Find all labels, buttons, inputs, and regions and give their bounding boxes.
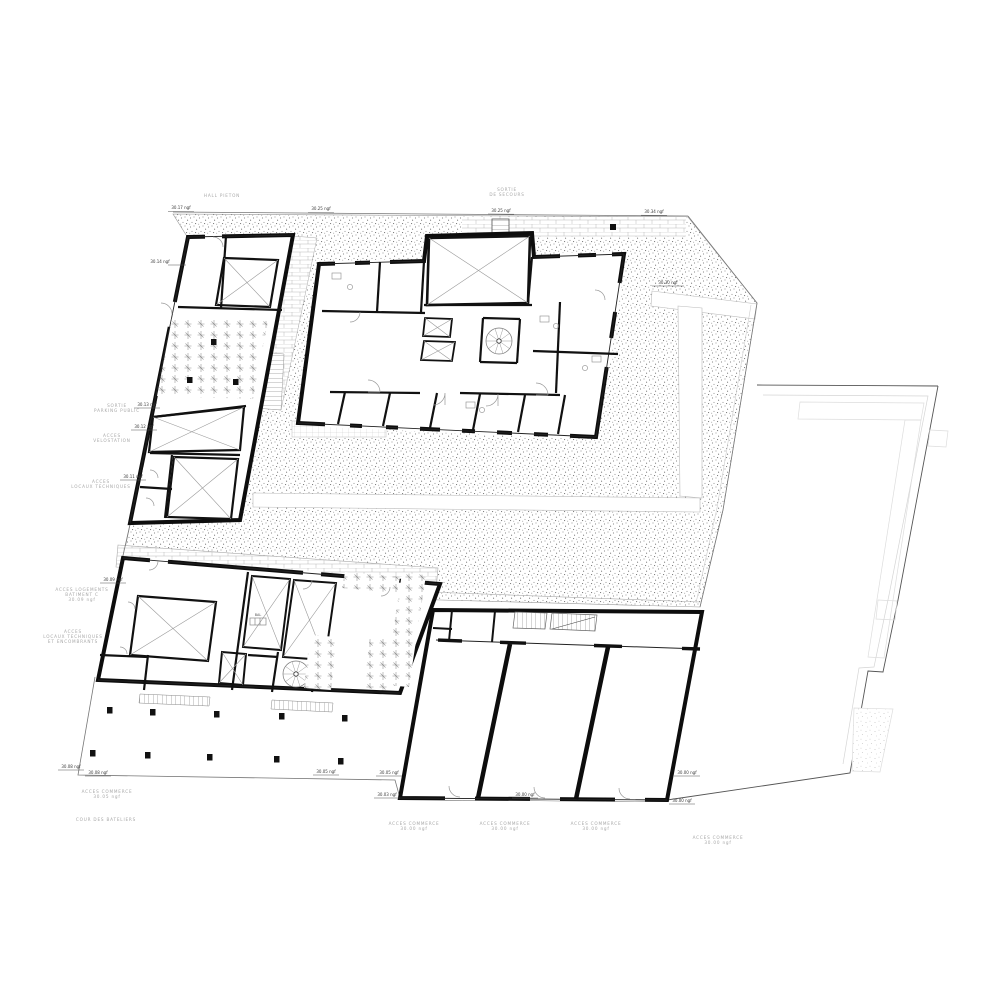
- commercial-building: [400, 610, 702, 800]
- neighbor-top-line: [757, 385, 938, 386]
- elevation-label: 30.05 ngf: [316, 769, 336, 774]
- room-label: ET ENCOMBRANTS: [48, 639, 98, 644]
- elevation-label: 30.30 ngf: [658, 280, 678, 285]
- building-c: [98, 558, 440, 712]
- neighbor-band-v: [868, 420, 921, 658]
- commercial-outline: [400, 610, 702, 800]
- room-label: 30.00 ngf: [582, 826, 609, 831]
- building-c-grates: [139, 694, 333, 712]
- floor-plan-svg: 30.17 ngf 30.25 ngf 30.25 ngf 30.34 ngf …: [0, 0, 1000, 1000]
- elevation-label: 30.25 ngf: [311, 206, 331, 211]
- boundary-parking: [78, 677, 400, 798]
- room-label: LOCAUX TECHNIQUES: [71, 484, 130, 489]
- elevation-label: 30.14 ngf: [150, 259, 170, 264]
- neighbor-protrusion-2: [876, 600, 897, 620]
- room-label: 30.00 ngf: [704, 840, 731, 845]
- elevation-label: 30.12 ngf: [134, 424, 154, 429]
- parking-area: [90, 707, 348, 765]
- commercial-corridor-stairs: [513, 612, 597, 631]
- room-label: HALL PIETON: [204, 193, 240, 198]
- elevation-label: 30.00 ngf: [515, 792, 535, 797]
- elevation-label: 30.03 ngf: [377, 792, 397, 797]
- elevation-label: 30.11 ngf: [123, 474, 143, 479]
- neighbor-stipple-patch: [852, 708, 893, 772]
- neighbor-protrusion-1: [928, 430, 948, 447]
- bike-racks-velostation: [157, 318, 268, 399]
- elevation-label: 30.05 ngf: [379, 770, 399, 775]
- elevation-label: 30.13 ngf: [137, 402, 157, 407]
- elevation-label: 30.00 ngf: [677, 770, 697, 775]
- white-path-vertical: [678, 306, 702, 498]
- spiral-stair-building-b: [486, 328, 512, 354]
- room-label: PARKING PUBLIC: [94, 408, 140, 413]
- floor-plan-sheet: 30.17 ngf 30.25 ngf 30.25 ngf 30.34 ngf …: [0, 0, 1000, 1000]
- column-top-band: [610, 224, 616, 230]
- elevation-label: 30.17 ngf: [171, 205, 191, 210]
- elevation-label: 30.09 ngf: [103, 577, 123, 582]
- room-label: VELOSTATION: [93, 438, 130, 443]
- room-label: 30.00 ngf: [400, 826, 427, 831]
- neighbor-band-h: [798, 402, 924, 420]
- mailbox-label: BAL: [255, 613, 262, 617]
- room-label: 30.09 ngf: [68, 597, 95, 602]
- elevation-label: 30.08 ngf: [61, 764, 81, 769]
- elevation-label: 30.00 ngf: [672, 798, 692, 803]
- street-label: COUR DES BATELIERS: [76, 817, 136, 822]
- room-label: 30.00 ngf: [491, 826, 518, 831]
- room-label: DE SECOURS: [489, 192, 524, 197]
- elevation-label: 30.25 ngf: [491, 208, 511, 213]
- elevation-label: 30.34 ngf: [644, 209, 664, 214]
- room-label: 30.05 ngf: [93, 794, 120, 799]
- neighbor-inner-offset: [763, 395, 928, 764]
- building-b: [298, 233, 624, 437]
- elevation-label: 30.08 ngf: [88, 770, 108, 775]
